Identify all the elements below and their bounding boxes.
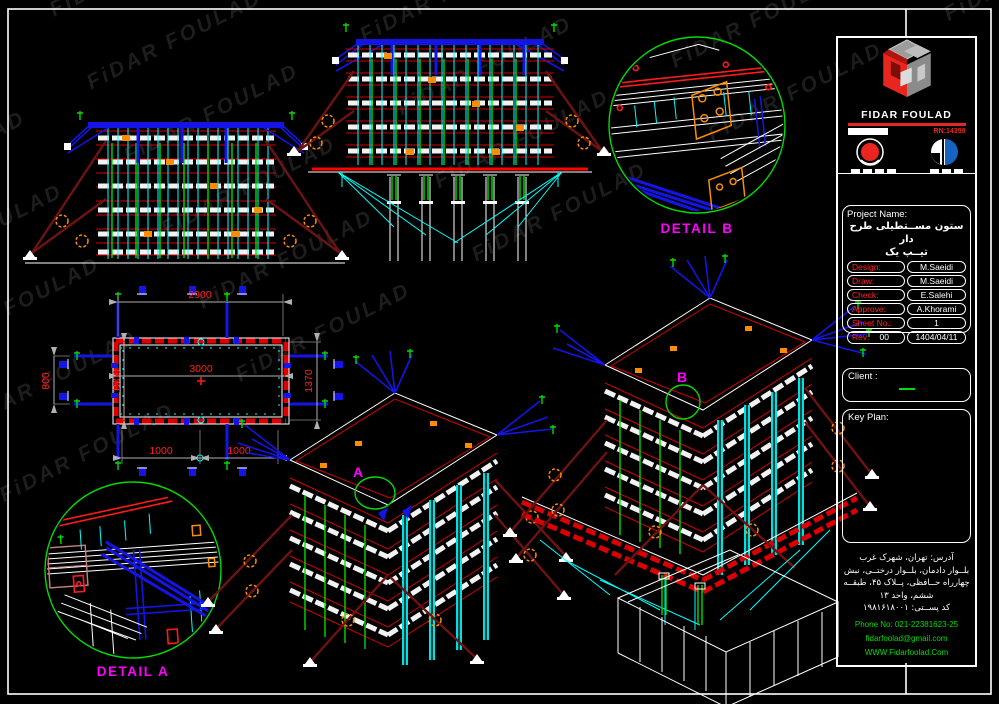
address-fa-line: ششم، واحد ۱۳: [840, 590, 973, 603]
project-name-fa-line1: ستون مســتطیلی طرح دار: [847, 220, 966, 246]
check-label: Check:: [847, 289, 905, 302]
plan-dim-left: 800: [40, 372, 52, 390]
logo-section: FIDAR FOULAD RN:14399: [838, 38, 975, 174]
approve-value: A.Khorami: [907, 303, 966, 316]
check-value: E.Salehi: [907, 289, 966, 302]
sheet-no-value: 1: [907, 317, 966, 330]
design-label: Design:: [847, 261, 905, 274]
iso-right-view: B: [503, 254, 879, 704]
company-cube-logo-icon: [871, 38, 943, 108]
detail-a-view: DETAIL A: [42, 482, 224, 679]
plan-dim-bottom-left: 1000: [149, 445, 173, 457]
client-placeholder-dash: [899, 388, 915, 390]
key-plan-label: Key Plan:: [848, 412, 965, 423]
sheet-no-label: Sheet No.:: [847, 317, 905, 330]
draw-label: Draw:: [847, 275, 905, 288]
certification-badge-icon: [929, 137, 959, 167]
plan-dim-top: 2900: [188, 289, 212, 301]
address-fa-line: کد پســتی: ۱۹۸۱۶۱۸۰۰۱: [840, 602, 973, 615]
address-fa-line: بلــوار دادمان، بلــوار درختــی، نبش: [840, 565, 973, 578]
iso-center-view: A: [201, 349, 573, 667]
design-value: M.Saeidi: [907, 261, 966, 274]
project-info-box: Project Name: ستون مســتطیلی طرح دار تیـ…: [842, 205, 971, 333]
iso-right-marker-b: B: [677, 369, 687, 385]
detail-a-label: DETAIL A: [97, 664, 170, 679]
approve-label: Approve:: [847, 303, 905, 316]
plan-view: 2900 3000 1500 1370 800 1000 1000: [40, 286, 343, 476]
titleblock: FIDAR FOULAD RN:14399: [836, 36, 977, 667]
client-label: Client :: [848, 371, 965, 382]
website-url: WWW.Fidarfoolad.Com: [840, 648, 973, 657]
rev-number: 00: [879, 332, 888, 342]
company-address: آدرس: تهران، شهرک غرب بلــوار دادمان، بل…: [840, 552, 973, 657]
client-box: Client :: [842, 368, 971, 402]
draw-value: M.Saeidi: [907, 275, 966, 288]
brand-red-bar: [848, 123, 966, 126]
email-address: fidarfoolad@gmail.com: [840, 634, 973, 643]
elevation-center-view: [287, 23, 611, 261]
plan-dim-right: 1370: [303, 369, 315, 393]
detail-b-label: DETAIL B: [660, 221, 733, 236]
company-name: FIDAR FOULAD: [861, 109, 952, 121]
key-plan-box: Key Plan:: [842, 409, 971, 543]
project-name-label: Project Name:: [847, 209, 966, 220]
badge-caption-dashes: [851, 169, 963, 173]
brand-white-rect: [848, 128, 888, 135]
plan-dim-height: 1500: [111, 369, 123, 393]
elevation-left-view: [23, 111, 349, 263]
address-fa-line: چهارراه حــافظی، پــلاک ۴۵، طبقــه: [840, 577, 973, 590]
rev-cell: Rev:00: [847, 331, 905, 344]
project-name-fa-line2: تیــپ یک: [847, 246, 966, 259]
rev-date: 1404/04/11: [907, 331, 966, 344]
drawing-sheet: FiDAR FOULADFiDAR FOULADFiDAR FOULADFiDA…: [0, 0, 999, 704]
plan-dim-width: 3000: [189, 363, 213, 375]
rev-label: Rev:: [852, 332, 869, 342]
phone-number: Phone No: 021-22381623-25: [840, 620, 973, 629]
iso-center-marker-a: A: [353, 464, 363, 480]
registration-number: RN:14399: [934, 128, 966, 135]
quality-badge-icon: [855, 137, 885, 167]
detail-b-view: DETAIL B: [603, 36, 792, 236]
address-fa-line: آدرس: تهران، شهرک غرب: [840, 552, 973, 565]
